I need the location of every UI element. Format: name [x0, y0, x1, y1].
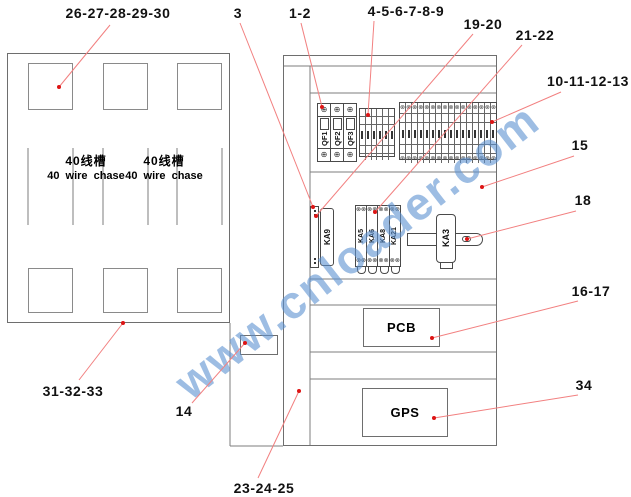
leader-dot — [121, 321, 125, 325]
leader-line — [258, 391, 299, 478]
leader-dot — [366, 113, 370, 117]
leader-line — [432, 301, 578, 338]
leader-dot — [297, 389, 301, 393]
leader-dot — [320, 105, 324, 109]
leader-dot — [243, 341, 247, 345]
leader-line — [375, 45, 522, 212]
leader-dot — [373, 210, 377, 214]
leader-dot — [490, 120, 494, 124]
leader-line — [316, 34, 473, 216]
leader-dot — [480, 185, 484, 189]
leader-line — [492, 92, 561, 122]
callout-leader-lines — [0, 0, 631, 497]
leader-dot — [432, 416, 436, 420]
leader-dot — [311, 205, 315, 209]
leader-line — [467, 211, 576, 239]
leader-line — [79, 323, 123, 380]
leader-dot — [430, 336, 434, 340]
leader-dot — [57, 85, 61, 89]
leader-line — [192, 343, 245, 403]
wiring-cabinet-diagram: 40线槽 40 wire chase 40线槽 40 wire chase ⊕ … — [0, 0, 631, 497]
leader-line — [301, 23, 322, 107]
leader-line — [482, 156, 574, 187]
leader-line — [59, 25, 110, 87]
leader-line — [240, 23, 313, 207]
leader-dot — [465, 237, 469, 241]
leader-line — [434, 395, 578, 418]
leader-dot — [314, 214, 318, 218]
leader-line — [368, 21, 374, 115]
